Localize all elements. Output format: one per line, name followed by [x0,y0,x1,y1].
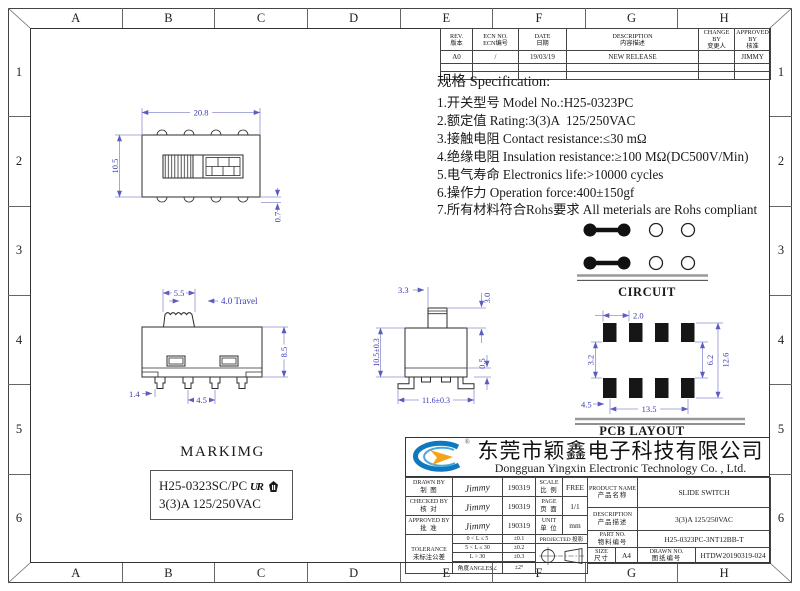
grid-label: 1 [770,28,792,116]
checked-by-date: 190319 [503,497,536,516]
drawn-by-date: 190319 [503,478,536,497]
grid-label: B [122,8,215,28]
tolerance-range: 角度ANGLES∠ [453,562,503,574]
pcb-pads [603,323,695,398]
dim-front-height: 8.5 [279,347,289,358]
spec-item: 5.电气寿命 Electronics life:>10000 cycles [437,166,769,184]
ul-mark-text: UR [250,481,263,492]
dim-top-height: 10.5 [110,159,120,174]
spec-item: 2.额定值 Rating:3(3)A 125/250VAC [437,112,769,130]
grid-label: C [214,8,307,28]
circuit-row-1 [584,224,695,237]
grid-label: A [30,563,122,583]
grid-ruler-right: 1 2 3 4 5 6 [770,28,792,563]
grid-label: 3 [8,206,30,295]
company-name-en: Dongguan Yingxin Electronic Technology C… [472,462,769,475]
side-view-body [398,308,474,389]
size-label: SIZE尺寸 [588,548,616,564]
revision-header-row: REV.版本 ECN NO.ECN编号 DATE日期 DESCRIPTION内容… [441,29,771,51]
grid-label: 5 [770,384,792,473]
grid-label: 2 [770,116,792,205]
drawn-no-value: HTDW20190319-024 [696,548,771,564]
tolerance-value: ±0.1 [503,535,536,544]
tolerance-range: L > 30 [453,553,503,562]
rev-cell: A0 [441,51,473,64]
projection-symbol-cell [536,544,588,574]
scale-value: FREE [563,478,588,497]
rev-cell: NEW RELEASE [567,51,699,64]
grid-ruler-left: 1 2 3 4 5 6 [8,28,30,563]
circuit-label: CIRCUIT [618,285,676,299]
dim-side-width: 11.6±0.3 [422,396,450,405]
title-block-left: DRAWN BY制 图 Jimmy 190319 SCALE比 例 FREE C… [405,477,588,574]
grid-label: D [307,8,400,28]
grid-ruler-top: A B C D E F G H [30,8,770,28]
cert-icon [269,481,278,492]
dim-front-knob: 5.5 [174,288,185,298]
product-name-value: SLIDE SWITCH [638,478,771,508]
front-view-drawing: 5.5 4.0 Travel 8.5 1.4 4.5 [125,283,320,411]
rev-header-cell: ECN NO.ECN编号 [473,29,519,51]
pcb-label: PCB LAYOUT [599,424,685,438]
grid-label: 1 [8,28,30,116]
unit-value: mm [563,516,588,535]
dim-side-foot: 0.5 [477,358,487,369]
grid-label: 6 [770,474,792,563]
drawn-by-signature: Jimmy [453,478,503,497]
title-block-right: PRODUCT NAME产品名称 SLIDE SWITCH DESCRIPTIO… [587,477,771,564]
rev-cell: / [473,51,519,64]
page-value: 1/1 [563,497,588,516]
tolerance-range: 5 < L ≤ 30 [453,544,503,553]
approved-by-signature: Jimmy [453,516,503,535]
part-no-value: H25-0323PC-3NT12BB-T [638,531,771,548]
projected-label: PROJECTED 投影 [536,535,588,544]
dim-side-height: 10.5±0.3 [372,338,381,366]
grid-ruler-bottom: A B C D E F G H [30,563,770,583]
grid-label: G [585,563,678,583]
scale-label: SCALE比 例 [536,478,563,497]
dim-side-actuator-height: 3.0 [482,293,492,304]
company-header: ® 东莞市颖鑫电子科技有限公司 Dongguan Yingxin Electro… [405,437,770,477]
dim-front-travel: 4.0 Travel [221,296,258,306]
specification-block: 规格 Specification: 1.开关型号 Model No.:H25-0… [437,70,769,219]
part-no-label: PART NO.物料编号 [588,531,638,548]
grid-label: D [307,563,400,583]
dim-pcb-inner: 6.2 [705,355,715,366]
rev-cell [699,51,735,64]
front-view-body [142,313,262,389]
marking-box: H25-0323SC/PC UR 3(3)A 125/250VAC [150,470,293,520]
grid-label: 4 [770,295,792,384]
grid-label: B [122,563,215,583]
dim-top-bump: 0.7 [273,212,283,223]
registered-mark: ® [465,438,470,446]
tolerance-range: 0 < L ≤ 5 [453,535,503,544]
drawn-no-label: DRAWN NO.图纸编号 [638,548,696,564]
unit-label: UNIT单 位 [536,516,563,535]
side-view-drawing: 3.3 3.0 10.5±0.3 0.5 11.6±0.3 [360,283,510,411]
revision-row: A0 / 19/03/19 NEW RELEASE JIMMY [441,51,771,64]
approved-by-date: 190319 [503,516,536,535]
rev-header-cell: DATE日期 [519,29,567,51]
rev-header-cell: REV.版本 [441,29,473,51]
grid-label: H [677,8,770,28]
rev-header-cell: DESCRIPTION内容描述 [567,29,699,51]
description-label: DESCRIPTION产品描述 [588,508,638,531]
approved-by-label: APPROVED BY批 准 [406,516,453,535]
rev-cell: JIMMY [735,51,771,64]
dim-front-pin: 1.4 [129,389,140,399]
grid-label: G [585,8,678,28]
first-angle-projection-icon [538,544,586,568]
checked-by-signature: Jimmy [453,497,503,516]
grid-label: E [400,8,493,28]
circuit-row-2 [584,257,695,270]
dim-top-width: 20.8 [194,108,209,118]
drawing-sheet: A B C D E F G H A B C D E F G H 1 2 3 4 … [0,0,800,591]
grid-label: F [492,8,585,28]
dim-side-actuator-width: 3.3 [398,285,409,295]
tolerance-value: ±0.3 [503,553,536,562]
marking-model: H25-0323SC/PC [159,477,247,495]
marking-title: MARKIMG [150,444,295,461]
ul-recognized-icon: UR [250,480,266,492]
checked-by-label: CHECKED BY核 对 [406,497,453,516]
front-view-dimensions: 5.5 4.0 Travel 8.5 1.4 4.5 [129,288,290,405]
dim-pcb-span: 13.5 [642,404,657,414]
company-name-cn: 东莞市颖鑫电子科技有限公司 [472,440,769,462]
top-view-dimensions: 20.8 10.5 0.7 [110,108,283,223]
tolerance-value: ±0.2 [503,544,536,553]
dim-pcb-gap: 3.2 [586,355,596,366]
dim-pcb-pitch: 2.0 [633,311,644,321]
top-view-drawing: 20.8 10.5 0.7 [90,95,300,230]
spec-item: 6.操作力 Operation force:400±150gf [437,184,769,202]
grid-label: 2 [8,116,30,205]
company-logo: ® [406,438,472,476]
spec-item: 4.绝缘电阻 Insulation resistance:≥100 MΩ(DC5… [437,148,769,166]
spec-item: 1.开关型号 Model No.:H25-0323PC [437,94,769,112]
dim-front-pitch: 4.5 [196,395,207,405]
grid-label: 4 [8,295,30,384]
grid-label: 3 [770,206,792,295]
grid-label: 5 [8,384,30,473]
rev-header-cell: APPROVED BY核准 [735,29,771,51]
logo-swoosh-icon [406,438,468,476]
rev-header-cell: CHANGE BY变更人 [699,29,735,51]
pcb-layout-drawing: 2.0 3.2 6.2 12.6 4.5 13.5 PCB LAYOUT [555,303,770,440]
grid-label: 6 [8,474,30,563]
marking-rating: 3(3)A 125/250VAC [159,495,292,513]
grid-label: H [677,563,770,583]
dim-pcb-outer: 12.6 [721,353,731,368]
specification-title: 规格 Specification: [437,70,769,91]
grid-label: C [214,563,307,583]
size-value: A4 [616,548,638,564]
drawn-by-label: DRAWN BY制 图 [406,478,453,497]
tolerance-label: TOLERANCE未标注公差 [406,535,453,574]
dim-pcb-offset: 4.5 [581,400,592,410]
circuit-diagram: CIRCUIT [565,212,770,304]
top-view-body [142,130,260,202]
tolerance-value: ±2° [503,562,536,574]
description-value: 3(3)A 125/250VAC [638,508,771,531]
company-names: 东莞市颖鑫电子科技有限公司 Dongguan Yingxin Electroni… [472,440,769,475]
rev-cell: 19/03/19 [519,51,567,64]
page-label: PAGE页 面 [536,497,563,516]
product-name-label: PRODUCT NAME产品名称 [588,478,638,508]
spec-item: 3.接触电阻 Contact resistance:≤30 mΩ [437,130,769,148]
grid-label: A [30,8,122,28]
